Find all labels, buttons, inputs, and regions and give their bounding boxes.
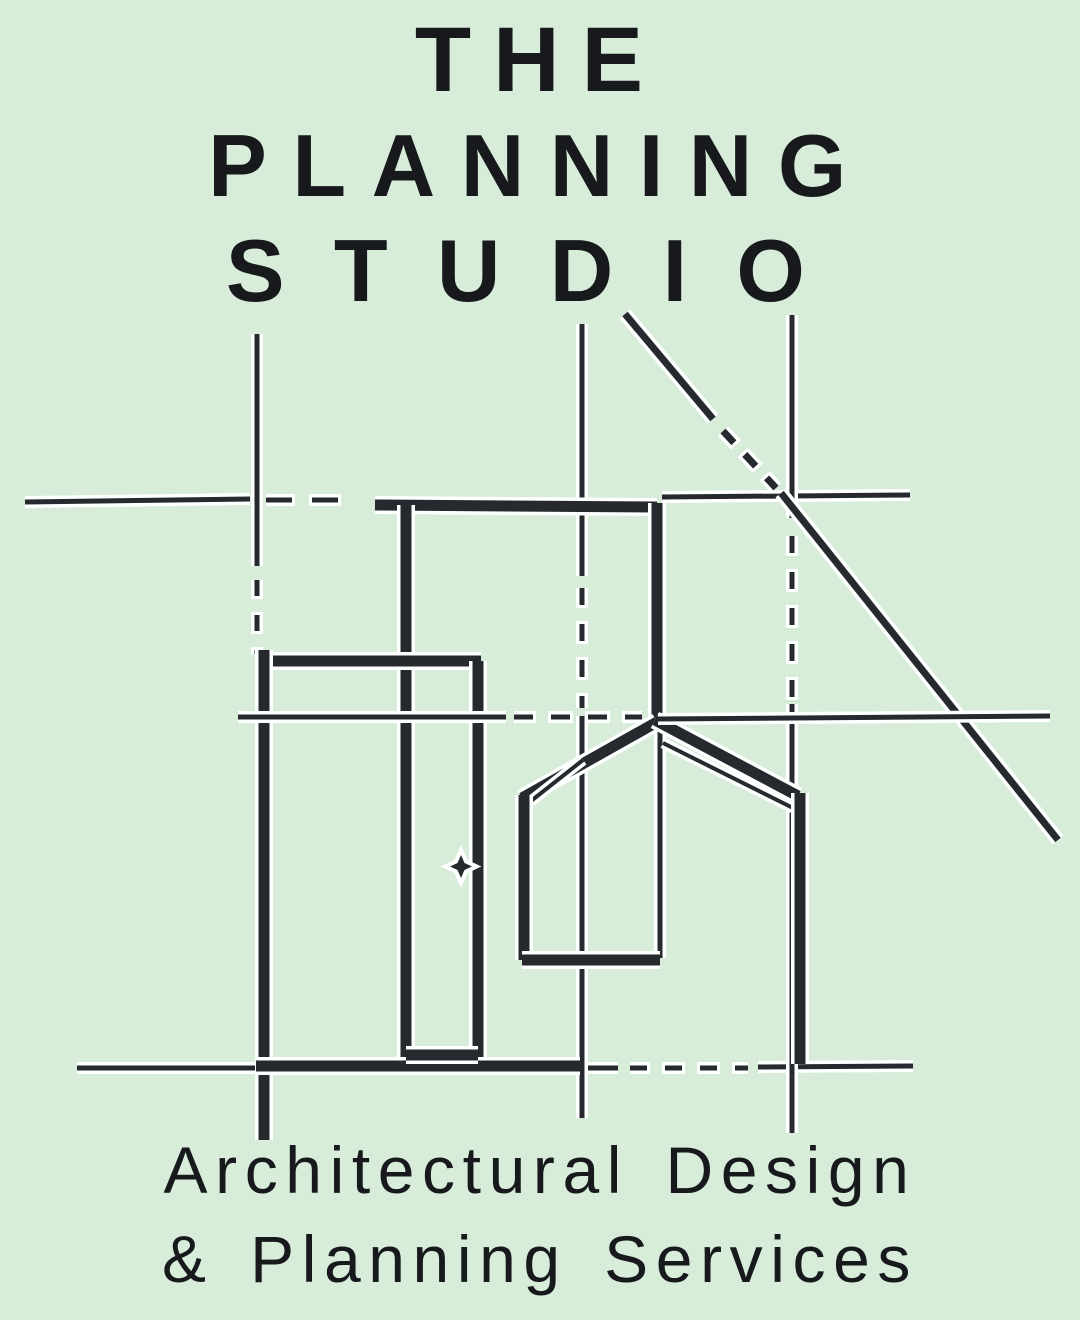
subtitle-line-1: Architectural Design xyxy=(0,1126,1080,1215)
logo-subtitle: Architectural Design & Planning Services xyxy=(0,1126,1080,1304)
construction-h-lower-right xyxy=(758,1066,913,1067)
roof-diagonal-top xyxy=(625,314,713,419)
logo-canvas: THE PLANNING STUDIO Architectural Design… xyxy=(0,0,1080,1320)
door-knob-icon xyxy=(450,855,472,878)
construction-h-upper-left xyxy=(25,499,250,502)
title-line-studio: STUDIO xyxy=(0,218,1080,323)
construction-h-mid-right xyxy=(658,716,1050,719)
gable-right-roof xyxy=(655,720,798,796)
frame-top xyxy=(375,505,657,507)
logo-title: THE PLANNING STUDIO xyxy=(0,8,1080,323)
subtitle-line-2: & Planning Services xyxy=(0,1215,1080,1304)
roof-diagonal-bottom xyxy=(781,493,1058,840)
roof-diagonal-dashes xyxy=(723,431,776,488)
title-line-planning: PLANNING xyxy=(0,113,1080,218)
title-line-the: THE xyxy=(0,8,1080,113)
